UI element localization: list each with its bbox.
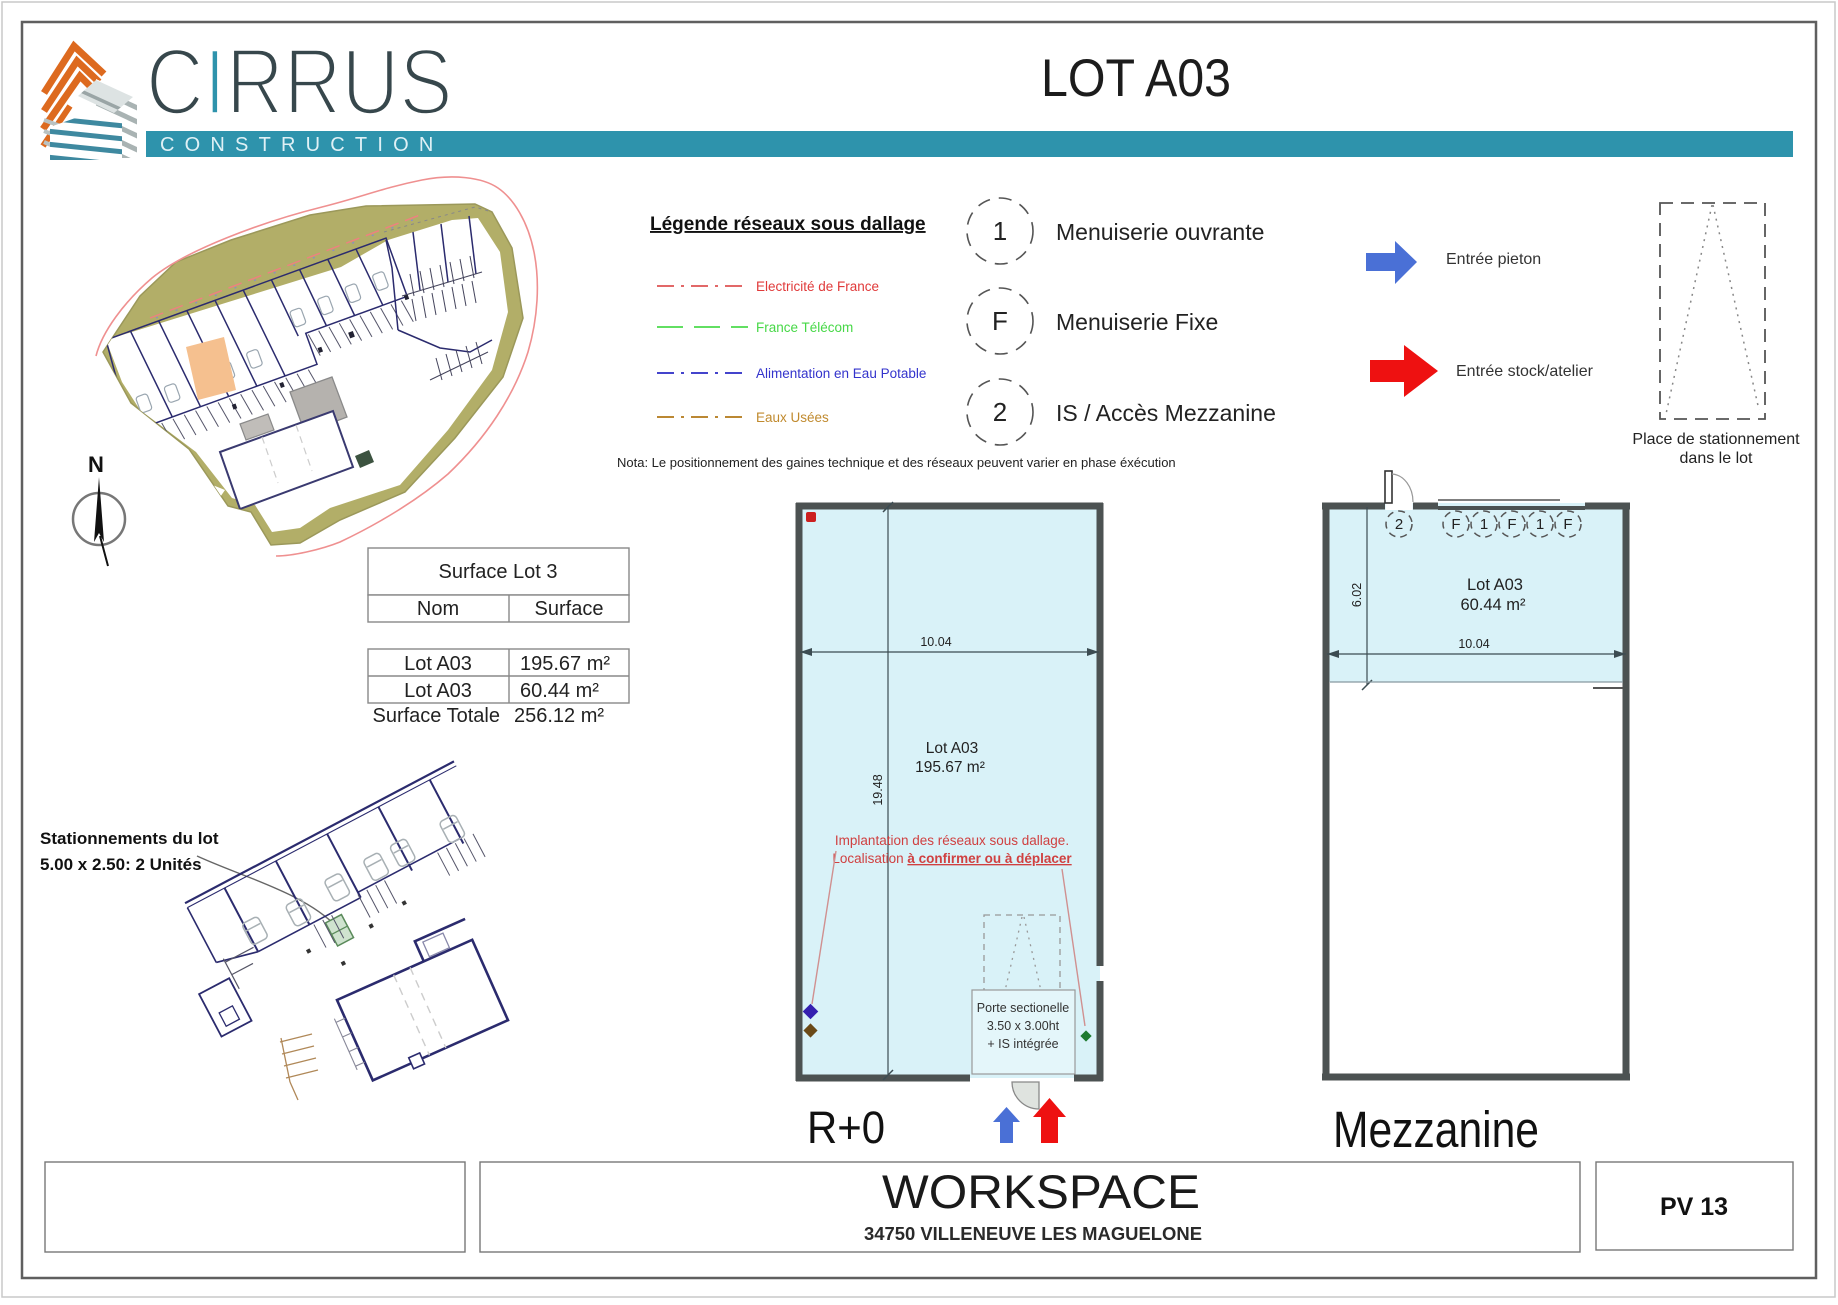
svg-text:Electricité de France: Electricité de France: [756, 279, 879, 294]
svg-text:Lot A03: Lot A03: [1467, 576, 1523, 594]
svg-text:1: 1: [1480, 516, 1488, 533]
svg-text:CIRRUS: CIRRUS: [146, 30, 453, 134]
svg-text:3.50 x 3.00ht: 3.50 x 3.00ht: [987, 1019, 1060, 1033]
svg-text:Menuiserie ouvrante: Menuiserie ouvrante: [1056, 219, 1264, 245]
svg-text:2: 2: [993, 397, 1007, 427]
svg-text:F: F: [992, 306, 1008, 336]
svg-text:F: F: [1563, 516, 1572, 533]
svg-text:Lot A03: Lot A03: [404, 653, 472, 675]
svg-text:dans le lot: dans le lot: [1680, 450, 1753, 467]
svg-text:1: 1: [993, 216, 1007, 246]
svg-text:Nom: Nom: [417, 598, 459, 620]
svg-text:Mezzanine: Mezzanine: [1333, 1101, 1539, 1158]
svg-text:34750 VILLENEUVE LES MAGUELONE: 34750 VILLENEUVE LES MAGUELONE: [864, 1224, 1202, 1244]
svg-text:60.44 m²: 60.44 m²: [520, 680, 599, 702]
svg-text:195.67 m²: 195.67 m²: [915, 759, 985, 776]
svg-text:Entrée stock/atelier: Entrée stock/atelier: [1456, 363, 1594, 380]
svg-text:WORKSPACE: WORKSPACE: [882, 1165, 1200, 1218]
svg-text:F: F: [1451, 516, 1460, 533]
svg-text:Stationnements du lot: Stationnements du lot: [40, 829, 219, 848]
svg-text:Nota: Le positionnement des ga: Nota: Le positionnement des gaines techn…: [617, 455, 1176, 470]
svg-text:Implantation des réseaux sous: Implantation des réseaux sous dallage.: [835, 833, 1069, 848]
svg-text:Localisation à confirmer ou à: Localisation à confirmer ou à déplacer: [832, 851, 1072, 866]
svg-text:N: N: [88, 452, 104, 477]
svg-text:Légende réseaux sous dallage: Légende réseaux sous dallage: [650, 214, 926, 235]
svg-text:Porte sectionelle: Porte sectionelle: [977, 1001, 1069, 1015]
svg-text:10.04: 10.04: [1458, 637, 1489, 651]
svg-text:Lot A03: Lot A03: [404, 680, 472, 702]
svg-text:Surface Lot 3: Surface Lot 3: [439, 561, 558, 583]
svg-text:F: F: [1507, 516, 1516, 533]
svg-text:PV 13: PV 13: [1660, 1193, 1728, 1221]
svg-text:Eaux Usées: Eaux Usées: [756, 410, 829, 425]
svg-text:Surface: Surface: [535, 598, 604, 620]
svg-text:Place de stationnement: Place de stationnement: [1632, 431, 1800, 448]
svg-text:IS / Accès Mezzanine: IS / Accès Mezzanine: [1056, 400, 1276, 426]
svg-text:CONSTRUCTION: CONSTRUCTION: [160, 134, 444, 156]
svg-text:19.48: 19.48: [871, 774, 885, 805]
svg-text:Surface Totale: Surface Totale: [373, 705, 501, 727]
svg-text:Entrée pieton: Entrée pieton: [1446, 251, 1541, 268]
svg-text:LOT A03: LOT A03: [1041, 49, 1231, 108]
svg-text:10.04: 10.04: [920, 635, 951, 649]
svg-text:Lot A03: Lot A03: [926, 740, 979, 757]
svg-text:+ IS intégrée: + IS intégrée: [987, 1037, 1058, 1051]
svg-text:France Télécom: France Télécom: [756, 320, 853, 335]
svg-text:5.00 x 2.50: 2 Unités: 5.00 x 2.50: 2 Unités: [40, 855, 202, 874]
svg-text:256.12 m²: 256.12 m²: [514, 705, 604, 727]
svg-text:195.67 m²: 195.67 m²: [520, 653, 610, 675]
svg-text:Menuiserie Fixe: Menuiserie Fixe: [1056, 309, 1218, 335]
svg-text:1: 1: [1536, 516, 1544, 533]
svg-text:Alimentation en Eau Potable: Alimentation en Eau Potable: [756, 366, 926, 381]
svg-text:2: 2: [1395, 516, 1403, 533]
svg-text:6.02: 6.02: [1350, 583, 1364, 607]
svg-text:R+0: R+0: [807, 1102, 885, 1153]
svg-text:60.44 m²: 60.44 m²: [1460, 596, 1526, 614]
